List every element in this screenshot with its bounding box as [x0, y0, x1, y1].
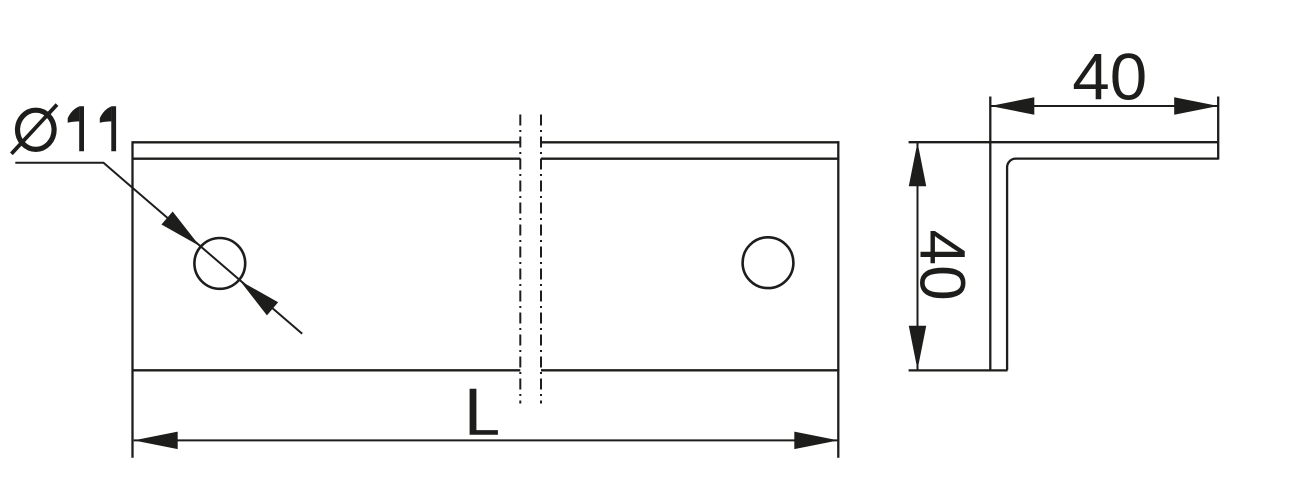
svg-text:40: 40: [907, 230, 979, 301]
svg-text:40: 40: [1072, 39, 1147, 113]
